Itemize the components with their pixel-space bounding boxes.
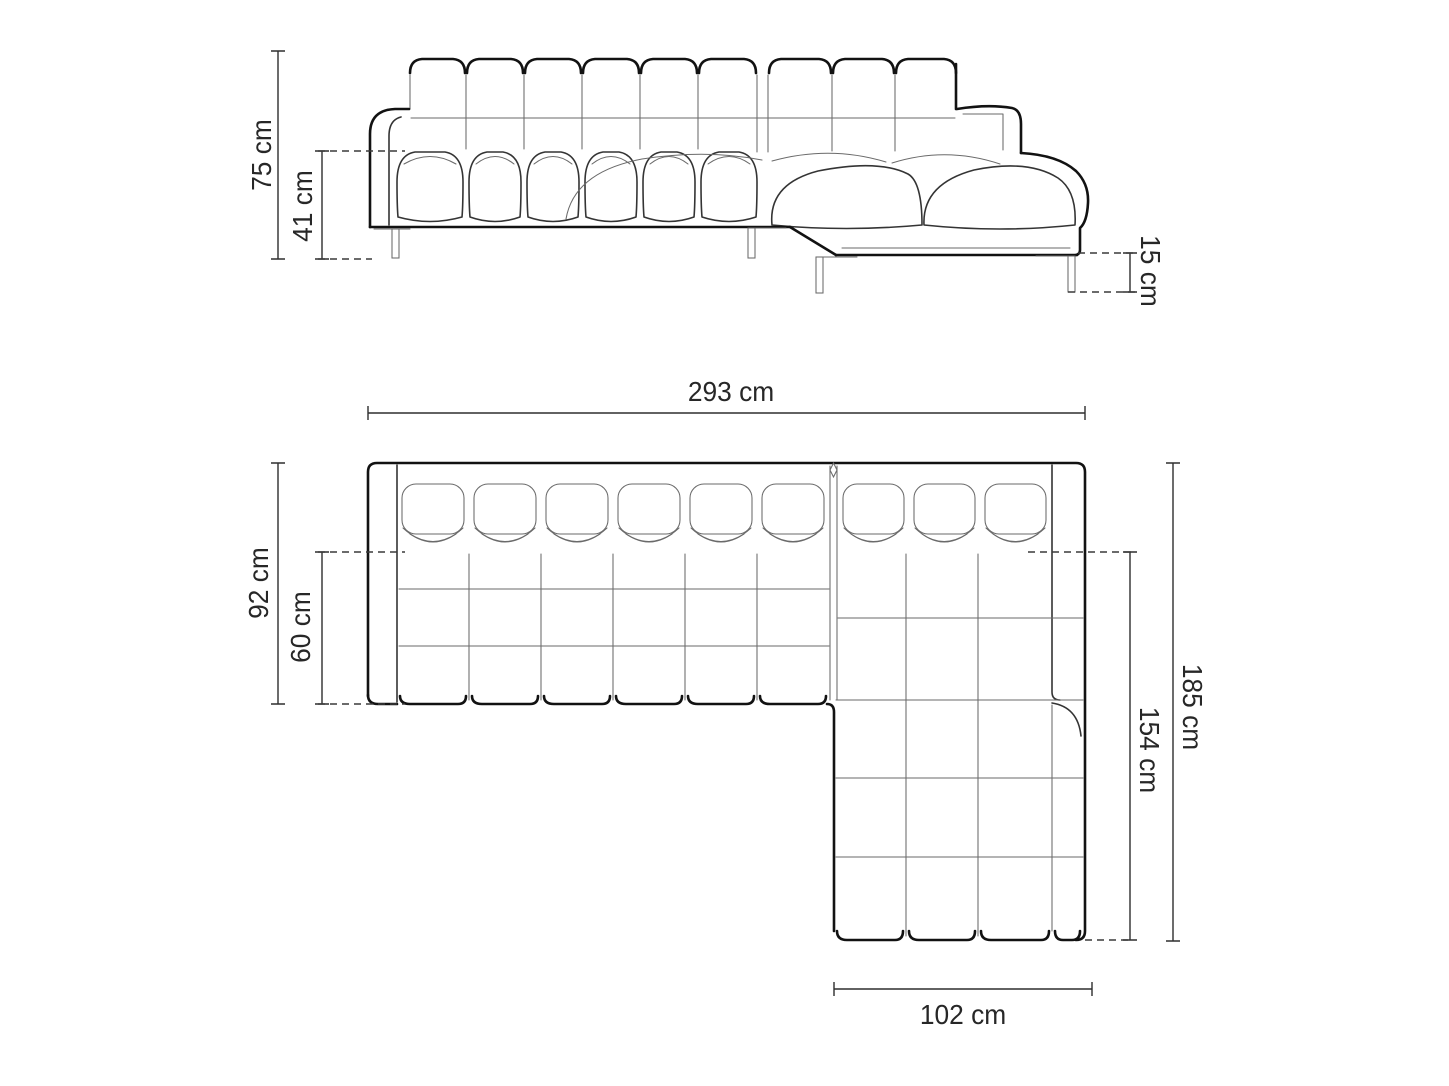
dim-label-chaise-width: 102 cm xyxy=(920,1001,1006,1029)
dim-line-leg-height xyxy=(1068,253,1137,292)
plan-outline xyxy=(368,463,1085,940)
dim-label-seat-height: 41 cm xyxy=(289,170,317,242)
front-backrest-top-edge xyxy=(410,59,956,109)
dim-label-total-width: 293 cm xyxy=(688,378,774,406)
front-legs xyxy=(374,228,1075,293)
dim-label-chaise-total-depth: 185 cm xyxy=(1178,664,1206,750)
front-base xyxy=(370,227,1077,255)
dim-line-chaise-inner-length xyxy=(1028,552,1137,940)
front-elevation-view xyxy=(271,51,1137,293)
top-plan-view xyxy=(271,406,1180,996)
dimension-diagram-canvas: 75 cm 41 cm 15 cm 293 cm 92 cm 60 cm 185… xyxy=(0,0,1449,1086)
dim-line-chaise-width xyxy=(834,982,1092,996)
dim-label-leg-height: 15 cm xyxy=(1136,235,1164,307)
dim-label-seat-depth: 60 cm xyxy=(287,591,315,663)
dim-label-total-depth: 92 cm xyxy=(245,547,273,619)
front-seat-cushions xyxy=(397,152,757,222)
dim-label-chaise-inner-length: 154 cm xyxy=(1135,707,1163,793)
dim-line-seat-depth xyxy=(315,552,405,704)
dim-label-total-height: 75 cm xyxy=(248,119,276,191)
dim-line-total-width xyxy=(368,406,1085,420)
plan-back-cushions xyxy=(402,484,1046,542)
front-right-arm xyxy=(957,106,1021,153)
sofa-technical-drawing xyxy=(0,0,1449,1086)
front-backrest-tuft-lines xyxy=(410,75,955,152)
plan-seat-grid xyxy=(399,554,1083,936)
